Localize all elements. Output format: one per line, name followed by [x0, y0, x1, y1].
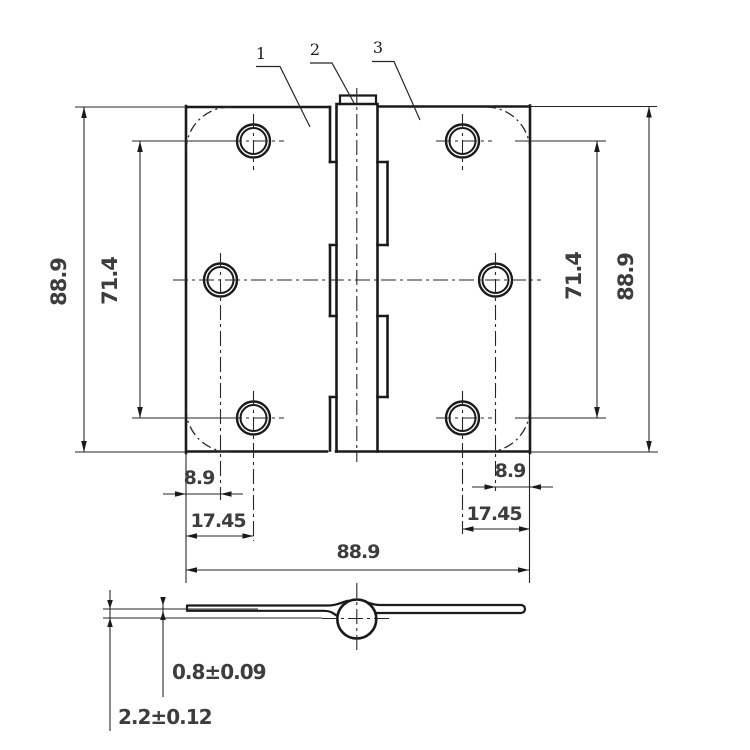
side-dimension-arrows — [107, 597, 166, 627]
callouts: 1 2 3 — [256, 38, 420, 127]
dim-closed-thickness: 2.2±0.12 — [118, 705, 212, 729]
dim-right-corner-hole-inset: 17.45 — [466, 503, 521, 525]
callout-pin: 2 — [310, 40, 320, 59]
centerlines — [173, 88, 541, 541]
dimension-labels: 88.9 71.4 71.4 88.9 8.9 17.45 8.9 17.45 … — [47, 252, 638, 563]
dim-left-corner-hole-inset: 17.45 — [190, 510, 245, 532]
right-leaf-profile — [366, 602, 526, 614]
drawing-canvas: 1 2 3 88.9 71.4 71.4 88.9 8.9 17.45 8.9 … — [0, 0, 750, 750]
top-view: 1 2 3 88.9 71.4 71.4 88.9 8.9 17.45 8.9 … — [47, 38, 658, 583]
hinge-outline — [186, 96, 530, 454]
callout-right-leaf: 3 — [373, 38, 383, 57]
callout-left-leaf: 1 — [256, 44, 266, 63]
side-view: 0.8±0.09 2.2±0.12 — [103, 583, 525, 731]
callout-leaders — [256, 62, 420, 128]
dim-left-height: 88.9 — [47, 258, 71, 306]
dimension-arrows — [81, 107, 652, 573]
dim-right-height: 88.9 — [614, 253, 638, 301]
side-centerlines — [322, 583, 391, 652]
dim-left-hole-spacing: 71.4 — [98, 257, 122, 305]
dim-leaf-thickness: 0.8±0.09 — [172, 660, 266, 684]
left-leaf-profile — [187, 601, 348, 616]
dim-right-center-hole-inset: 8.9 — [495, 460, 526, 482]
dim-left-center-hole-inset: 8.9 — [184, 467, 215, 489]
dimension-lines — [75, 107, 658, 584]
dim-open-width: 88.9 — [337, 541, 380, 563]
side-dimension-labels: 0.8±0.09 2.2±0.12 — [118, 660, 266, 729]
dim-right-hole-spacing: 71.4 — [562, 252, 586, 300]
hinge-technical-drawing: 1 2 3 88.9 71.4 71.4 88.9 8.9 17.45 8.9 … — [0, 0, 750, 750]
right-leaf-outline — [336, 106, 530, 454]
hole-centerlines — [221, 114, 496, 541]
